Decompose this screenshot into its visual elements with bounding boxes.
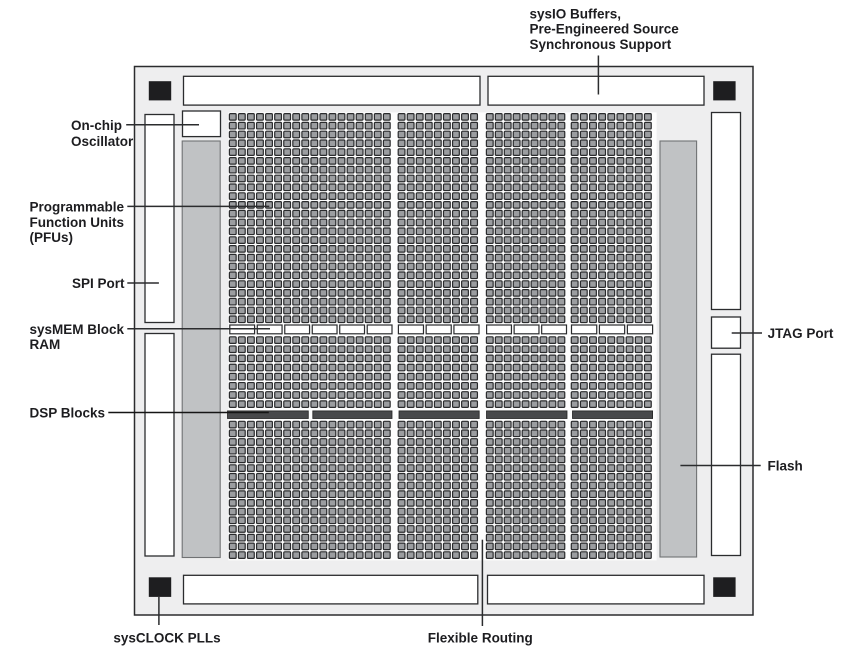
svg-text:Flash: Flash [768,459,803,474]
svg-text:On-chip: On-chip [71,118,122,133]
svg-text:SPI Port: SPI Port [72,276,125,291]
svg-text:Programmable: Programmable [30,200,125,215]
svg-text:sysMEM Block: sysMEM Block [30,322,125,337]
svg-text:DSP Blocks: DSP Blocks [30,406,106,421]
svg-text:sysCLOCK PLLs: sysCLOCK PLLs [113,630,220,645]
svg-text:Pre-Engineered Source: Pre-Engineered Source [530,22,680,37]
svg-text:Synchronous Support: Synchronous Support [530,37,672,52]
svg-text:(PFUs): (PFUs) [30,230,74,245]
svg-text:sysIO Buffers,: sysIO Buffers, [530,7,622,22]
svg-text:JTAG Port: JTAG Port [768,326,834,341]
svg-text:Flexible Routing: Flexible Routing [428,630,533,645]
svg-text:Function Units: Function Units [30,215,125,230]
svg-text:Oscillator: Oscillator [71,134,134,149]
svg-text:RAM: RAM [30,337,61,352]
